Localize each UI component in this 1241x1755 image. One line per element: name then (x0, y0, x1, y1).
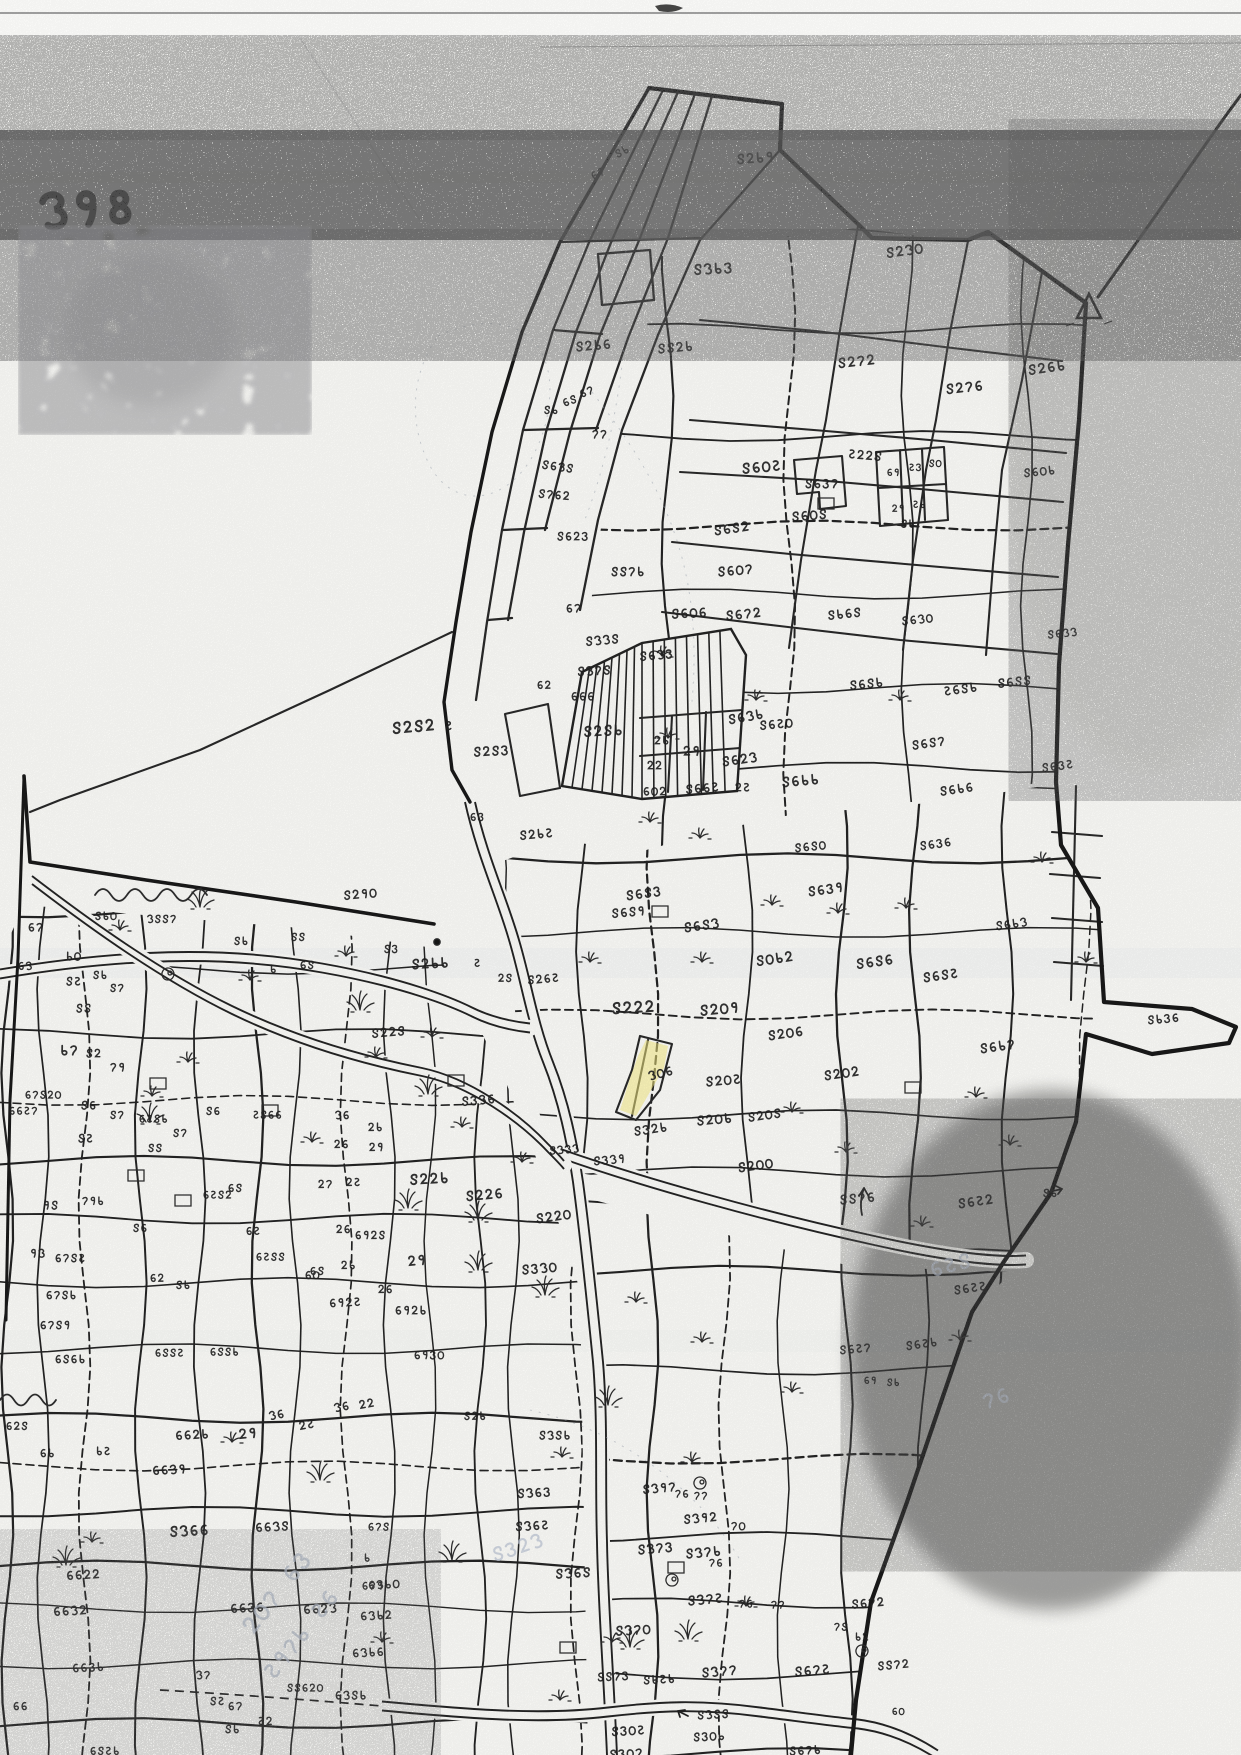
cadastral-map (0, 0, 1241, 1755)
photocopy-artifacts (0, 0, 1241, 1755)
scanned-map-sheet: ১98 (0, 0, 1241, 1755)
